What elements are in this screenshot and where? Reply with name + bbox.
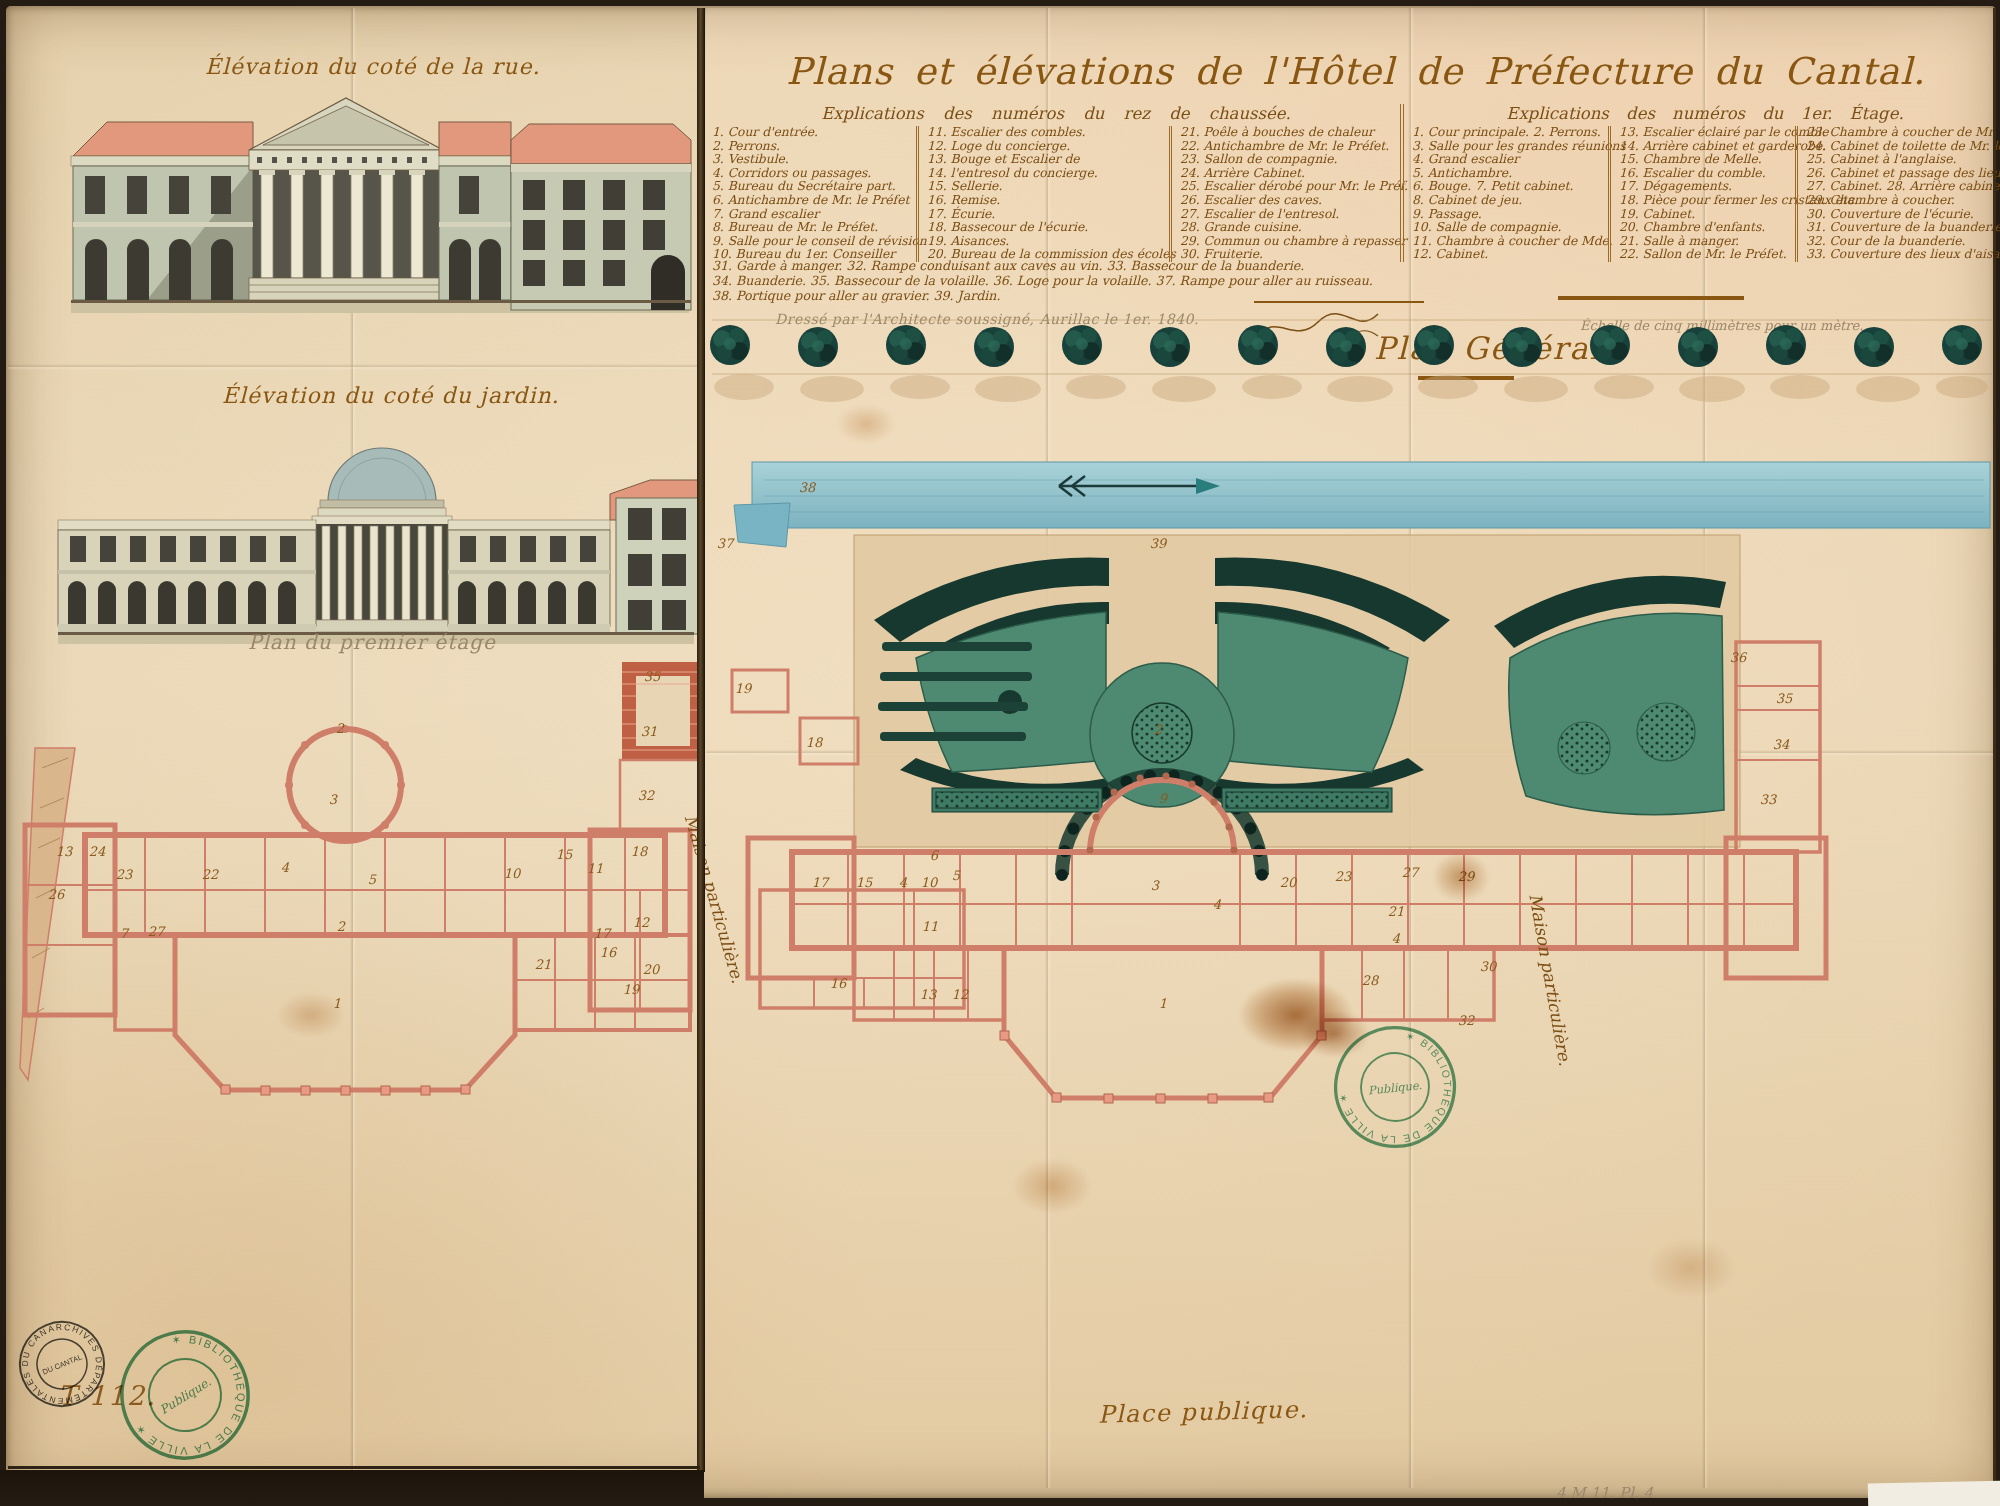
legend-entry: 4. Corridors ou passages. [712, 167, 912, 181]
center-bosquet [1132, 703, 1192, 763]
ink-stain [1646, 1238, 1736, 1298]
legend-ground-col3: 21. Poêle à bouches de chaleur22. Antich… [1169, 126, 1399, 262]
tree-shadows [714, 374, 1988, 402]
legend-entry: 19. Cabinet. [1619, 208, 1791, 222]
garden-wall-wedge [20, 748, 75, 1080]
legend-entry: 3. Vestibule. [712, 153, 912, 167]
legend-entry: 28. Grande cuisine. [1180, 221, 1395, 235]
legend-entry: 33. Couverture des lieux d'aisance. [1806, 248, 2000, 262]
legend-entry: 11. Escalier des combles. [927, 126, 1165, 140]
ink-stain [276, 992, 346, 1038]
legend-entry: 16. Escalier du comble. [1619, 167, 1791, 181]
fold-crease [8, 364, 700, 370]
legend-entry: 23. Chambre à coucher de Mr. le Préf. [1806, 126, 2000, 140]
main-wing [85, 835, 665, 935]
library-stamp-center-text: Publique. [157, 1375, 213, 1417]
legend-entry: 15. Sellerie. [927, 180, 1165, 194]
legend-first-floor: Explications des numéros du 1er. Étage. … [1400, 104, 1998, 262]
legend-entry: 9. Salle pour le conseil de révision [712, 235, 912, 249]
legend-entry: 26. Cabinet et passage des lieux d'aisan… [1806, 167, 2000, 181]
legend-entry: 1. Cour principale. 2. Perrons. [1412, 126, 1604, 140]
legend-ground-col2: 11. Escalier des combles.12. Loge du con… [916, 126, 1169, 262]
legend-entry: 1. Cour d'entrée. [712, 126, 912, 140]
ink-stain [1432, 852, 1490, 902]
outbuilding-18 [800, 718, 858, 764]
left-range [58, 520, 316, 633]
tall-right-block [610, 480, 698, 634]
left-wing [71, 122, 255, 300]
left-sheet-bottom-edge [8, 1466, 700, 1469]
legend-entry: 25. Escalier dérobé pour Mr. le Préf. [1180, 180, 1395, 194]
legend-entry: 29. Chambre à coucher. [1806, 194, 2000, 208]
legend-entry: 22. Antichambre de Mr. le Préfet. [1180, 140, 1395, 154]
legend-ground-floor: Explications des numéros du rez de chaus… [712, 104, 1400, 262]
corner-note: 4 M 11. Pl. 4 [1556, 1484, 1653, 1502]
left-pavilion [748, 838, 854, 978]
trees [710, 325, 1982, 367]
legend-footnote-line: 31. Garde à manger. 32. Rampe conduisant… [712, 258, 1572, 273]
street-elevation-title: Élévation du coté de la rue. [205, 54, 541, 79]
legend-entry: 15. Chambre de Melle. [1619, 153, 1791, 167]
main-wing [792, 852, 1796, 948]
legend-entry: 7. Grand escalier [712, 208, 912, 222]
tree-allee [710, 320, 1992, 402]
tall-right-block [511, 124, 691, 310]
legend-entry: 22. Sallon de Mr. le Préfet. [1619, 248, 1791, 262]
ground-line [71, 300, 691, 303]
legend-entry: 8. Bureau de Mr. le Préfet. [712, 221, 912, 235]
legend-entry: 4. Grand escalier [1412, 153, 1604, 167]
legend-entry: 32. Cour de la buanderie. [1806, 235, 2000, 249]
central-portico [249, 98, 443, 300]
outbuilding-19 [732, 670, 788, 712]
legend-entry: 21. Poêle à bouches de chaleur [1180, 126, 1395, 140]
legend-entry: 14. Arrière cabinet et garderobe. [1619, 140, 1791, 154]
legend-entry: 13. Escalier éclairé par le comble [1619, 126, 1791, 140]
legend-entry: 29. Commun ou chambre à repasser [1180, 235, 1395, 249]
legend-entry: 8. Cabinet de jeu. [1412, 194, 1604, 208]
legend-entry: 11. Chambre à coucher de Mde. [1412, 235, 1604, 249]
under-sheet-sliver [1868, 1481, 2000, 1506]
legend-entry: 27. Cabinet. 28. Arrière cabinet. [1806, 180, 2000, 194]
right-service-strip [1736, 642, 1820, 852]
legend-first-col3: 23. Chambre à coucher de Mr. le Préf.24.… [1795, 126, 2000, 262]
plan-general-drawing [704, 290, 2000, 1490]
main-title: Plans et élévations de l'Hôtel de Préfec… [718, 50, 1994, 93]
right-pavilion [1726, 838, 1826, 978]
garden-elevation-title: Élévation du coté du jardin. [222, 383, 560, 408]
legend-entry: 3. Salle pour les grandes réunions [1412, 140, 1604, 154]
ink-stain [1300, 1010, 1370, 1058]
legend: Explications des numéros du rez de chaus… [712, 104, 1998, 262]
legend-entry: 23. Sallon de compagnie. [1180, 153, 1395, 167]
backing-board [0, 1470, 704, 1506]
legend-entry: 17. Dégagements. [1619, 180, 1791, 194]
right-range [448, 520, 610, 633]
legend-ground-col1: 1. Cour d'entrée.2. Perrons.3. Vestibule… [712, 126, 916, 262]
legend-entry: 21. Salle à manger. [1619, 235, 1791, 249]
legend-entry: 5. Antichambre. [1412, 167, 1604, 181]
street-elevation-drawing [55, 92, 700, 332]
legend-entry: 5. Bureau du Secrétaire part. [712, 180, 912, 194]
archive-stamp-center-text: DU CANTAL [41, 1352, 83, 1376]
legend-entry: 18. Bassecour de l'écurie. [927, 221, 1165, 235]
first-floor-plan-drawing [12, 648, 707, 1438]
legend-entry: 26. Escalier des caves. [1180, 194, 1395, 208]
brick-annex [622, 662, 704, 760]
legend-footnote-line: 34. Buanderie. 35. Bassecour de la volai… [712, 273, 1572, 288]
legend-ground-header: Explications des numéros du rez de chaus… [712, 104, 1400, 123]
library-stamp-center-text: Publique. [1368, 1079, 1423, 1098]
legend-entry: 16. Remise. [927, 194, 1165, 208]
legend-entry: 24. Arrière Cabinet. [1180, 167, 1395, 181]
legend-entry: 6. Antichambre de Mr. le Préfet [712, 194, 912, 208]
legend-entry: 30. Couverture de l'écurie. [1806, 208, 2000, 222]
place-publique-label: Place publique. [1098, 1395, 1309, 1428]
stream [734, 462, 1990, 547]
legend-entry: 2. Perrons. [712, 140, 912, 154]
ink-stain [836, 404, 896, 444]
legend-entry: 31. Couverture de la buanderie. [1806, 221, 2000, 235]
rotunda-pilasters [285, 725, 405, 829]
garden [854, 535, 1740, 875]
legend-entry: 9. Passage. [1412, 208, 1604, 222]
dome [318, 448, 446, 522]
right-wing [439, 122, 511, 300]
legend-entry: 25. Cabinet à l'anglaise. [1806, 153, 2000, 167]
legend-entry: 18. Pièce pour fermer les cristaux etc. [1619, 194, 1791, 208]
legend-entry: 14. l'entresol du concierge. [927, 167, 1165, 181]
scanned-architectural-drawing: Élévation du coté de la rue. [0, 0, 2000, 1506]
legend-first-header: Explications des numéros du 1er. Étage. [1412, 104, 1998, 123]
legend-entry: 12. Loge du concierge. [927, 140, 1165, 154]
garden-elevation-drawing [50, 424, 700, 659]
legend-entry: 20. Chambre d'enfants. [1619, 221, 1791, 235]
sheet-divider [697, 8, 705, 1472]
legend-entry: 13. Bouge et Escalier de [927, 153, 1165, 167]
ink-stain [1012, 1158, 1092, 1214]
basin [734, 503, 790, 547]
legend-entry: 6. Bouge. 7. Petit cabinet. [1412, 180, 1604, 194]
central-portico [312, 516, 452, 632]
legend-entry: 19. Aisances. [927, 235, 1165, 249]
legend-entry: 17. Écurie. [927, 208, 1165, 222]
legend-first-col2: 13. Escalier éclairé par le comble14. Ar… [1608, 126, 1795, 262]
legend-entry: 10. Salle de compagnie. [1412, 221, 1604, 235]
legend-first-col1: 1. Cour principale. 2. Perrons.3. Salle … [1412, 126, 1608, 262]
legend-entry: 27. Escalier de l'entresol. [1180, 208, 1395, 222]
legend-entry: 24. Cabinet de toilette de Mr. le Préfet [1806, 140, 2000, 154]
right-sheet-edge [1993, 8, 1996, 1488]
